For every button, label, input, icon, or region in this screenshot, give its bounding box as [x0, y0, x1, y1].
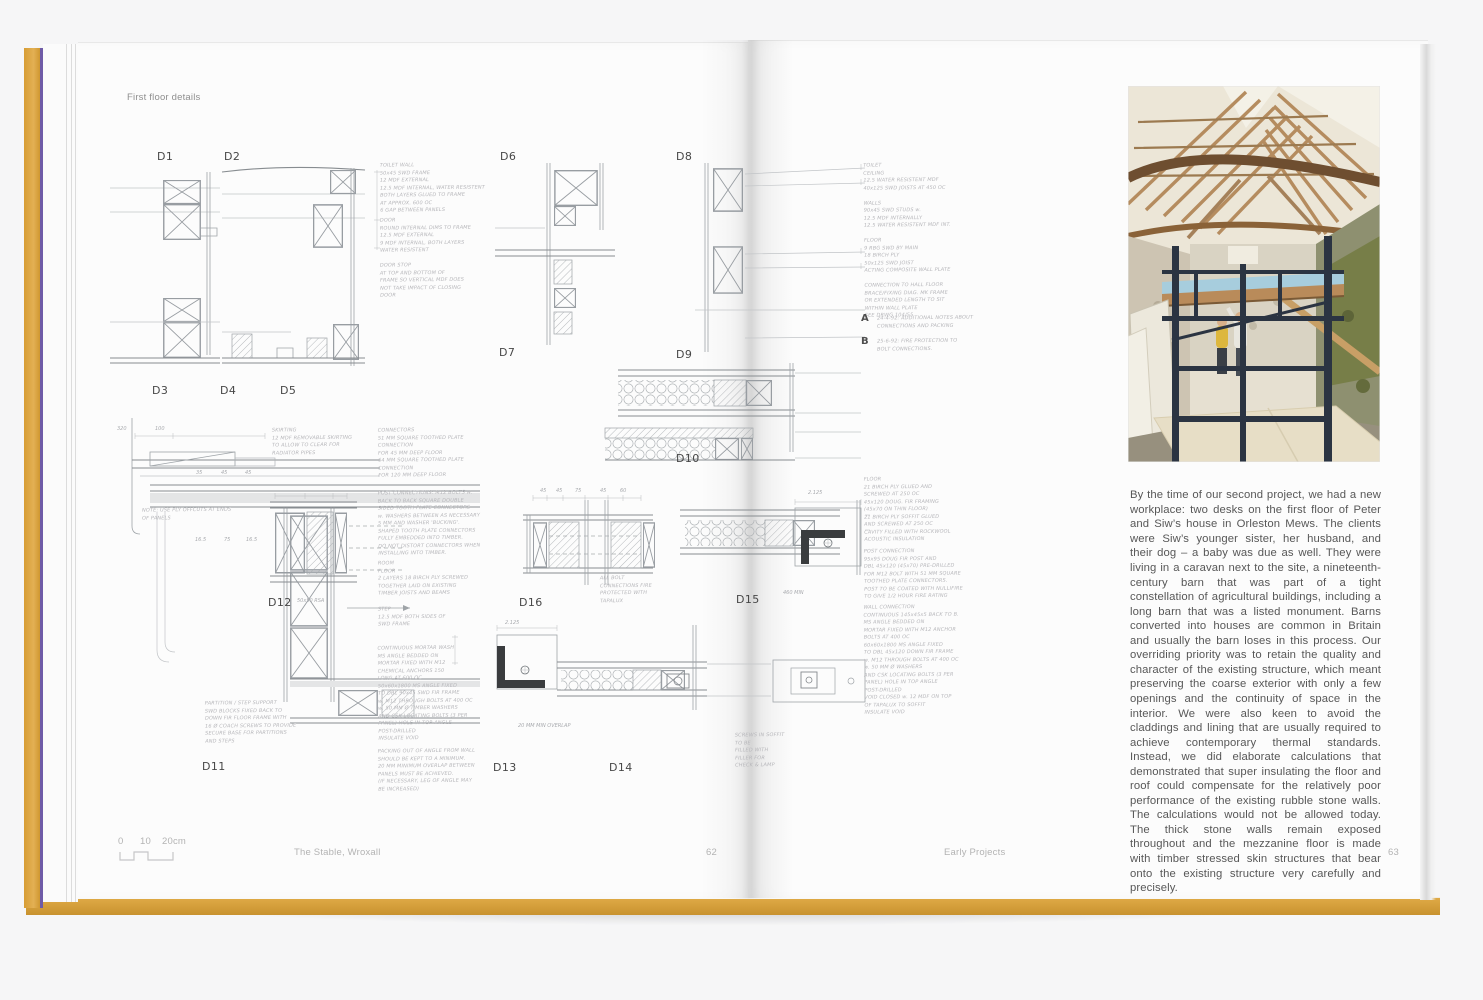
dim-60: 60 [620, 488, 626, 494]
detail-label-d12: D12 [268, 596, 292, 609]
left-page-number: 62 [706, 847, 717, 858]
detail-label-d16: D16 [519, 596, 543, 609]
detail-d14-drawing [667, 664, 771, 696]
desk-background: First floor details [0, 0, 1483, 1000]
detail-d15-drawing [680, 499, 870, 575]
right-page-number: 63 [1388, 847, 1399, 858]
detail-d15-lower-drawing [773, 660, 865, 702]
detail-d10-drawing [605, 428, 861, 460]
dim-45-c: 45 [540, 488, 546, 494]
page-stack-right [1420, 44, 1436, 900]
handwritten-note-toilet-schedule: TOILET CEILING 12.5 WATER RESISTENT MDF … [863, 161, 995, 320]
detail-label-d8: D8 [676, 150, 692, 163]
detail-d6-d7-drawing [495, 163, 615, 345]
dim-165-b: 16.5 [246, 537, 257, 543]
dim-45-a: 45 [221, 470, 227, 476]
handwritten-note-connectors: CONNECTORS 51 MM SQUARE TOOTHED PLATE CO… [378, 426, 497, 480]
detail-label-d11: D11 [202, 760, 226, 773]
scale-label-0: 0 [118, 836, 123, 847]
barn-construction-photo [1128, 86, 1380, 462]
handwritten-note-door-stop: DOOR STOP AT TOP AND BOTTOM OF FRAME SO … [380, 261, 500, 300]
handwritten-note-partition: PARTITION / STEP SUPPORT SWD BLOCKS FIXE… [205, 699, 320, 745]
revision-marker-b: B [861, 336, 869, 347]
handwritten-note-bolt-fire: ALL BOLT CONNECTIONS FIRE PROTECTED WITH… [600, 575, 662, 606]
scale-label-10: 10 [140, 836, 151, 847]
handwritten-note-toilet-wall: TOILET WALL 50x45 SWD FRAME 12 MDF EXTER… [380, 161, 501, 215]
right-footer-title: Early Projects [944, 847, 1005, 858]
detail-label-d7: D7 [499, 346, 515, 359]
body-paragraph: By the time of our second project, we ha… [1130, 488, 1381, 895]
handwritten-note-room-floor: ROOM FLOOR 2 LAYERS 18 BIRCH PLY SCREWED… [378, 559, 483, 598]
detail-label-d4: D4 [220, 384, 236, 397]
handwritten-note-floor-right: FLOOR 21 BIRCH PLY GLUED AND SCREWED AT … [864, 475, 980, 544]
detail-label-d3: D3 [152, 384, 168, 397]
dim-35: 35 [196, 470, 202, 476]
dim-320: 320 [117, 426, 127, 432]
scale-label-20cm: 20cm [162, 836, 186, 847]
detail-label-d6: D6 [500, 150, 516, 163]
handwritten-note-post-connections: POST CONNECTIONS: M12 BOLTS w. BACK TO B… [378, 489, 487, 558]
dim-45-d: 45 [556, 488, 562, 494]
dim-75-gap: 75 [224, 537, 230, 543]
detail-d1-drawing [110, 172, 220, 363]
dim-75: 75 [575, 488, 581, 494]
handwritten-note-door: DOOR ROUND INTERNAL DIMS TO FRAME 12.5 M… [380, 216, 500, 255]
handwritten-note-soffit: SCREWS IN SOFFIT TO BE FILLED WITH FILLE… [735, 732, 825, 770]
revision-marker-a: A [861, 313, 869, 324]
book-cover-left-edge [24, 48, 40, 908]
handwritten-note-packing: PACKING OUT OF ANGLE FROM WALL SHOULD BE… [378, 747, 490, 793]
dim-rsa: 50x50 RSA [297, 598, 324, 604]
detail-d8-drawing [695, 163, 865, 352]
handwritten-note-skirting: SKIRTING 12 MDF REMOVABLE SKIRTING TO AL… [272, 426, 377, 457]
dim-2125-a: 2.125 [505, 620, 519, 626]
handwritten-note-ply-offcuts: NOTE: USE PLY OFFCUTS AT ENDS OF PANELS [142, 506, 262, 522]
detail-d16-drawing [523, 495, 655, 585]
page-title: First floor details [127, 92, 201, 103]
dim-45-b: 45 [245, 470, 251, 476]
detail-label-d10: D10 [676, 452, 700, 465]
dim-overlap: 20 MM MIN OVERLAP [518, 723, 571, 729]
detail-label-d2: D2 [224, 150, 240, 163]
handwritten-note-wall-connection-right: WALL CONNECTION CONTINUOUS 145x45x5 BACK… [863, 603, 984, 717]
left-footer-title: The Stable, Wroxall [294, 847, 381, 858]
dim-460-min: 460 MIN [783, 590, 804, 596]
detail-d2-drawing [222, 167, 380, 366]
detail-label-d9: D9 [676, 348, 692, 361]
dim-165-a: 16.5 [195, 537, 206, 543]
dim-2125-b: 2.125 [808, 490, 822, 496]
dim-100: 100 [155, 426, 165, 432]
handwritten-note-step: STEP 12.5 MDF BOTH SIDES OF SWD FRAME [378, 606, 468, 629]
dim-45-e: 45 [600, 488, 606, 494]
revision-note-a: 24-4-92: ADDITIONAL NOTES ABOUT CONNECTI… [877, 314, 987, 330]
detail-label-d14: D14 [609, 761, 633, 774]
detail-label-d1: D1 [157, 150, 173, 163]
detail-d13-drawing [497, 625, 707, 710]
detail-label-d13: D13 [493, 761, 517, 774]
page-stack-left [43, 44, 78, 902]
detail-label-d5: D5 [280, 384, 296, 397]
revision-note-b: 25-6-92: FIRE PROTECTION TO BOLT CONNECT… [877, 337, 987, 353]
handwritten-note-post-connection-right: POST CONNECTION 95x95 DOUG FIR POST AND … [864, 547, 985, 601]
handwritten-note-continuous-angle: CONTINUOUS MORTAR WASH MS ANGLE BEDDED O… [377, 644, 486, 743]
detail-label-d15: D15 [736, 593, 760, 606]
